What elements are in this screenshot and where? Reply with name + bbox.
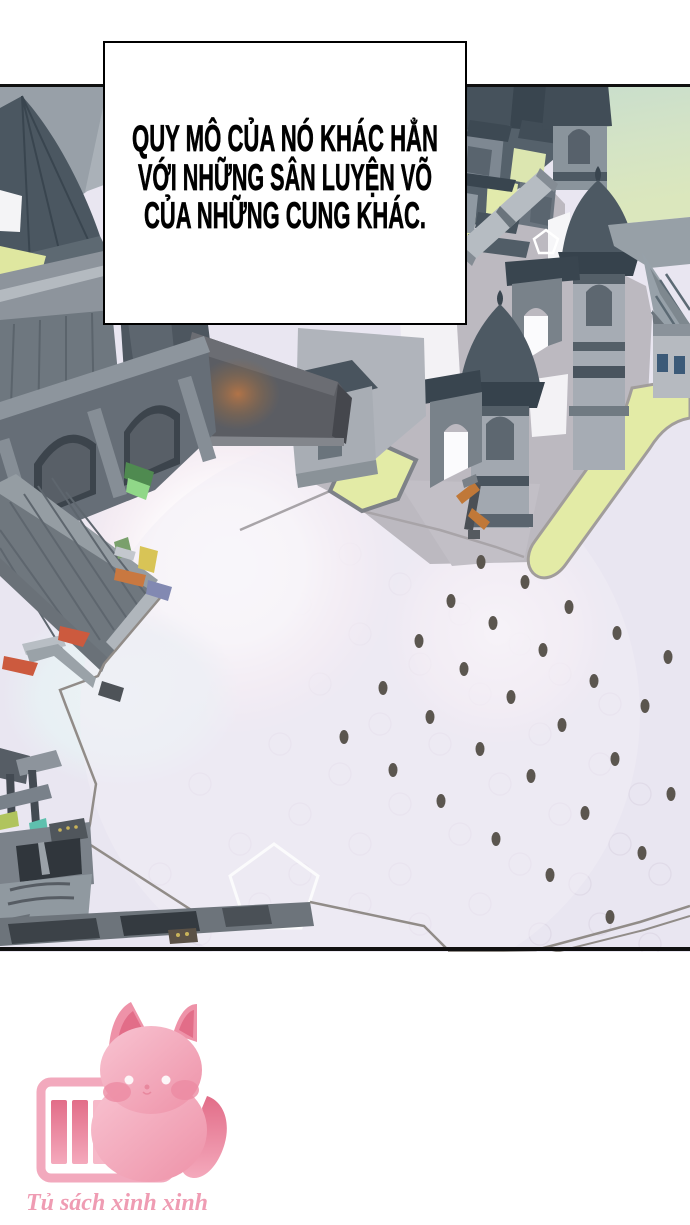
svg-text:CỦA NHỮNG CUNG KHÁC.: CỦA NHỮNG CUNG KHÁC. bbox=[144, 194, 426, 236]
svg-text:QUY MÔ CỦA NÓ KHÁC HẲN: QUY MÔ CỦA NÓ KHÁC HẲN bbox=[132, 117, 438, 159]
svg-text:VỚI NHỮNG SÂN LUYỆN VÕ: VỚI NHỮNG SÂN LUYỆN VÕ bbox=[138, 156, 432, 198]
